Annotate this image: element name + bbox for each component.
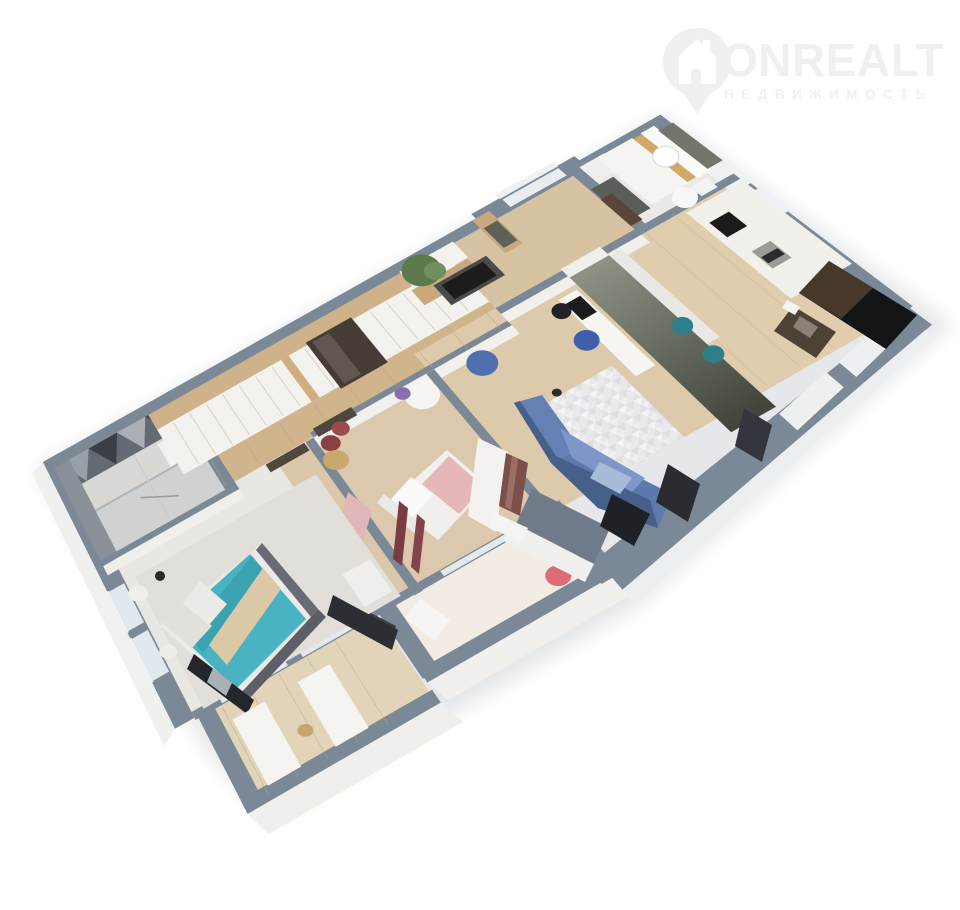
svg-text:ONREALT: ONREALT bbox=[722, 34, 944, 86]
svg-text:НЕДВИЖИМОСТЬ: НЕДВИЖИМОСТЬ bbox=[724, 87, 933, 102]
